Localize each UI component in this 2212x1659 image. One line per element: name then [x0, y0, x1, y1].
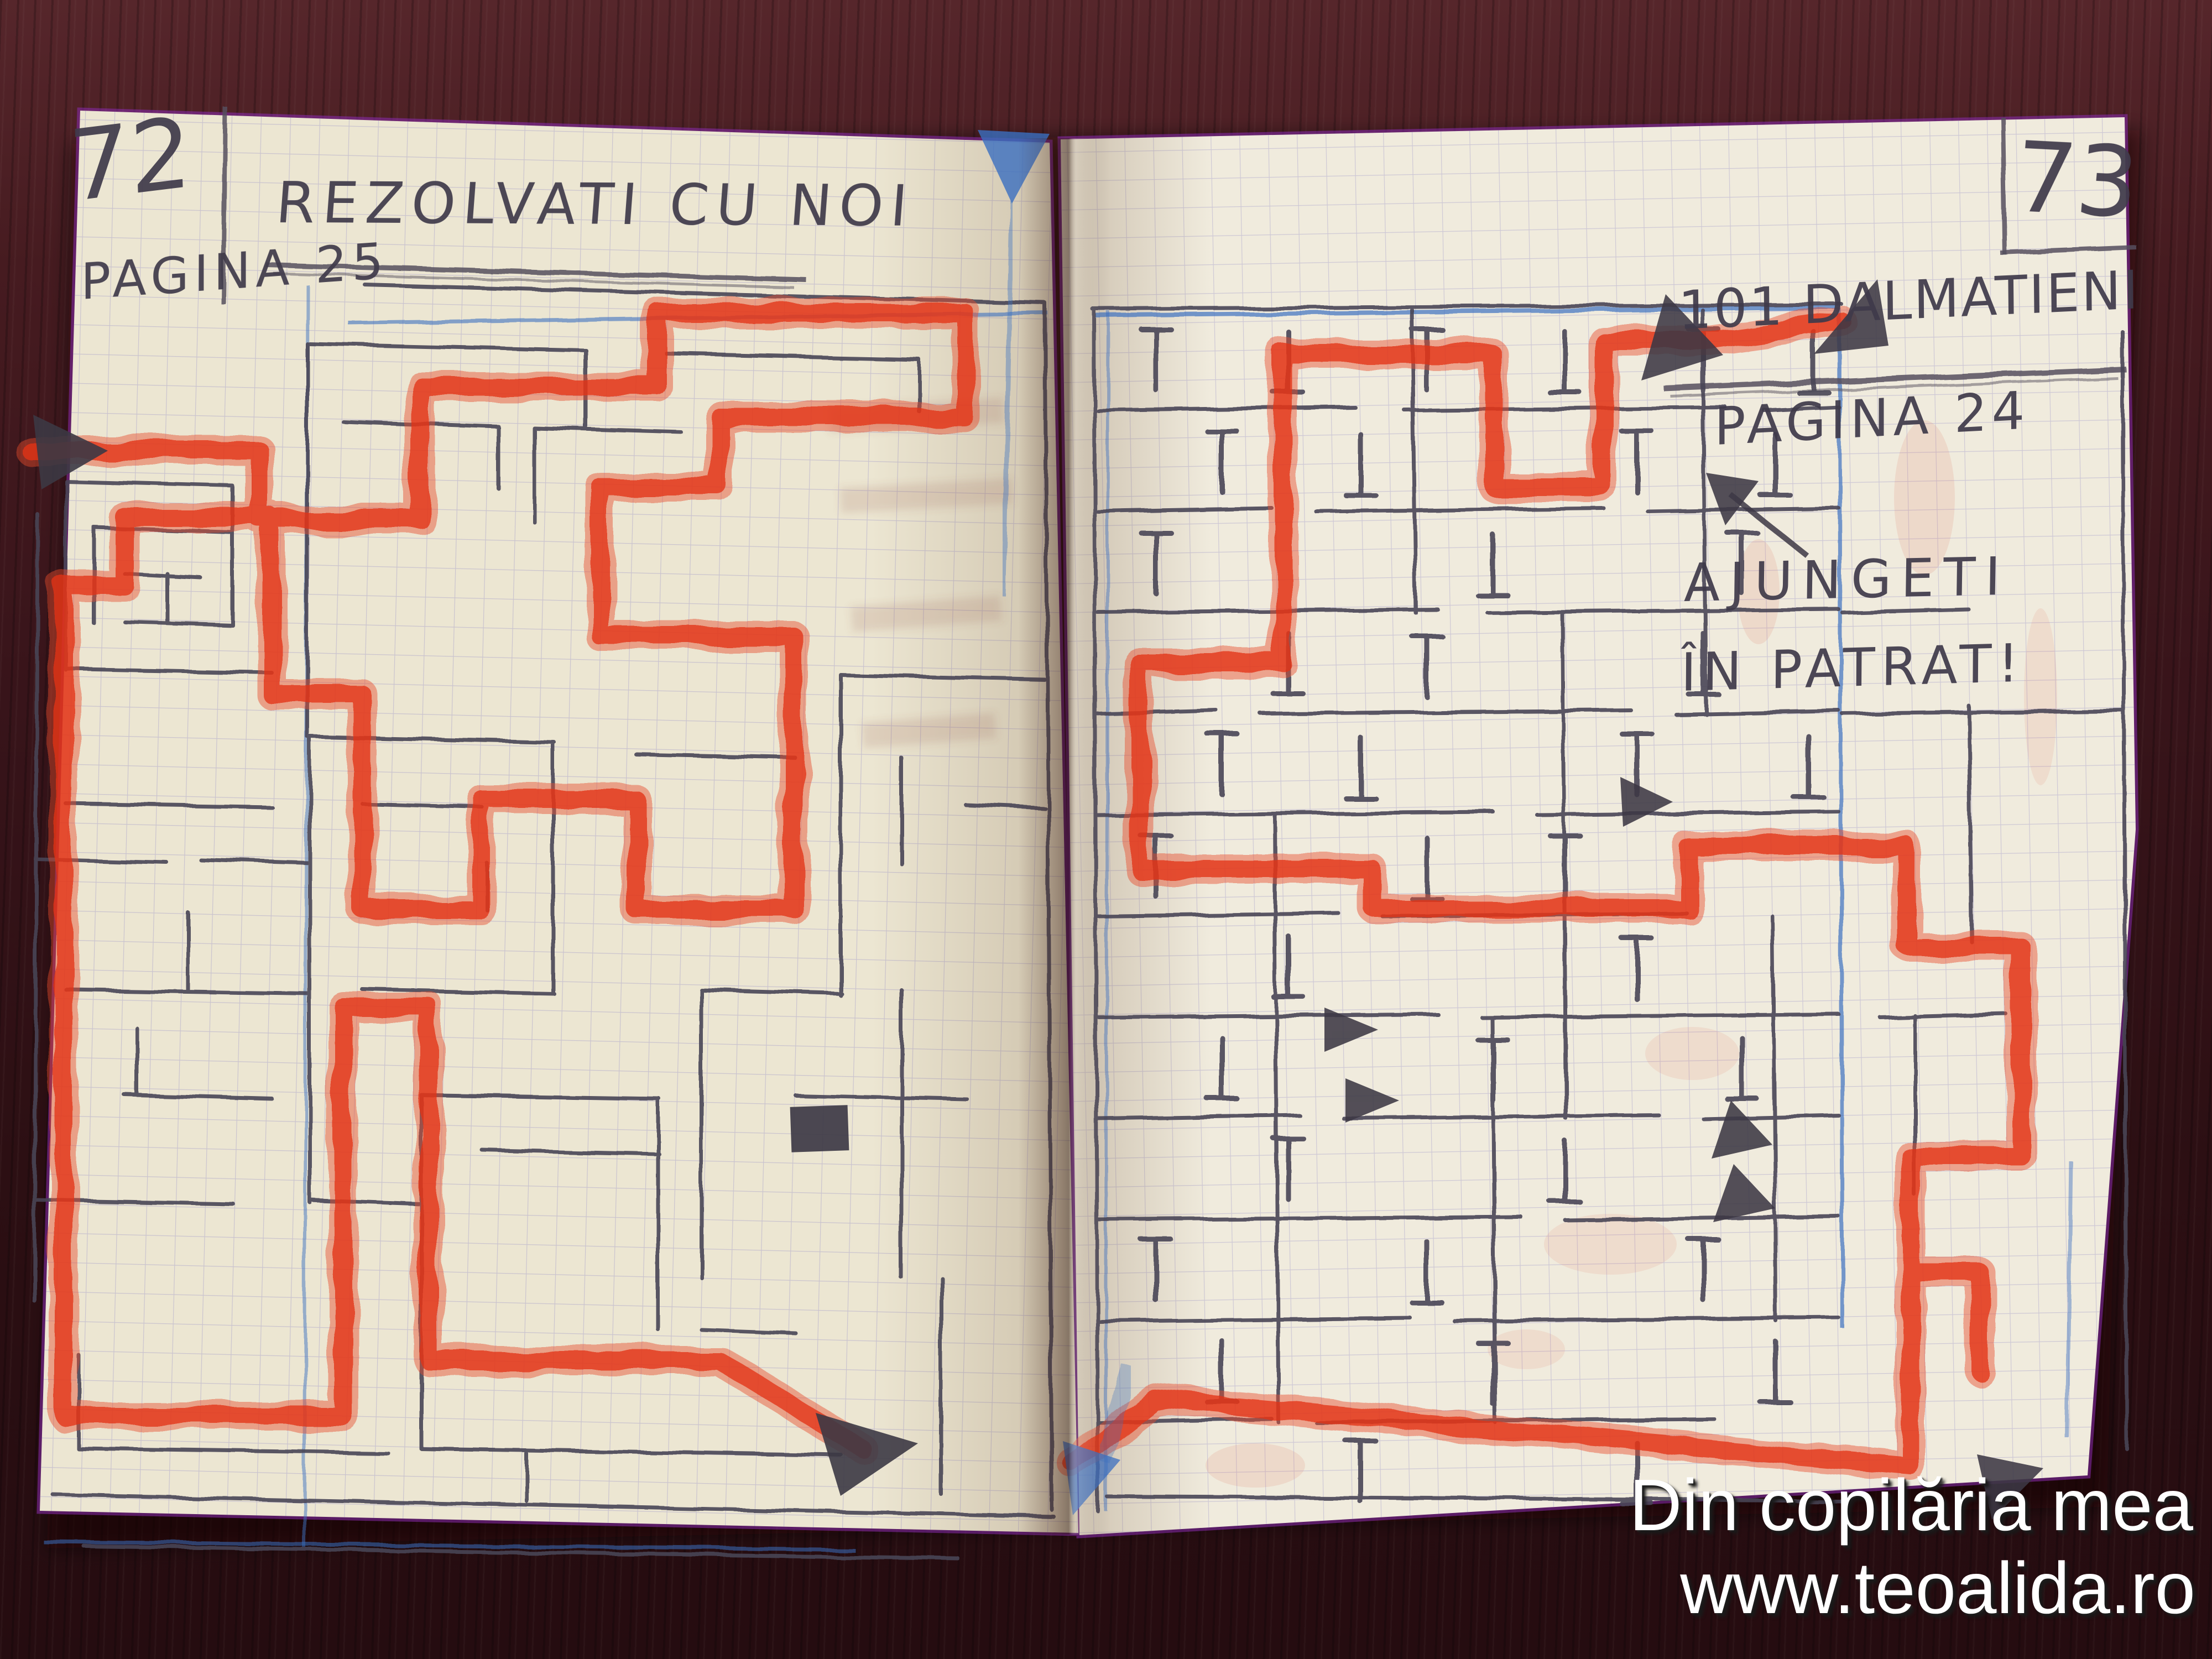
- goal-square: [790, 1105, 849, 1152]
- left-page-number: 72: [66, 96, 193, 225]
- right-page-number: 73: [2010, 121, 2143, 240]
- watermark-line1: Din copilăria mea: [1629, 1463, 2193, 1547]
- right-page-note-line2: ÎN PATRAT!: [1681, 633, 2025, 703]
- spine-crease: [1019, 138, 1110, 1535]
- watermark-line2: www.teoalida.ro: [1680, 1546, 2195, 1630]
- left-page-title: REZOLVATI CU NOI: [274, 170, 917, 239]
- right-page: [1061, 117, 2137, 1535]
- left-page: [30, 107, 1078, 1558]
- notebook-photo: 72 73 REZOLVATI CU NOI PAGINA 25 101 DAL…: [0, 0, 2212, 1659]
- right-page-note-line1: AJUNGETI: [1683, 546, 2010, 614]
